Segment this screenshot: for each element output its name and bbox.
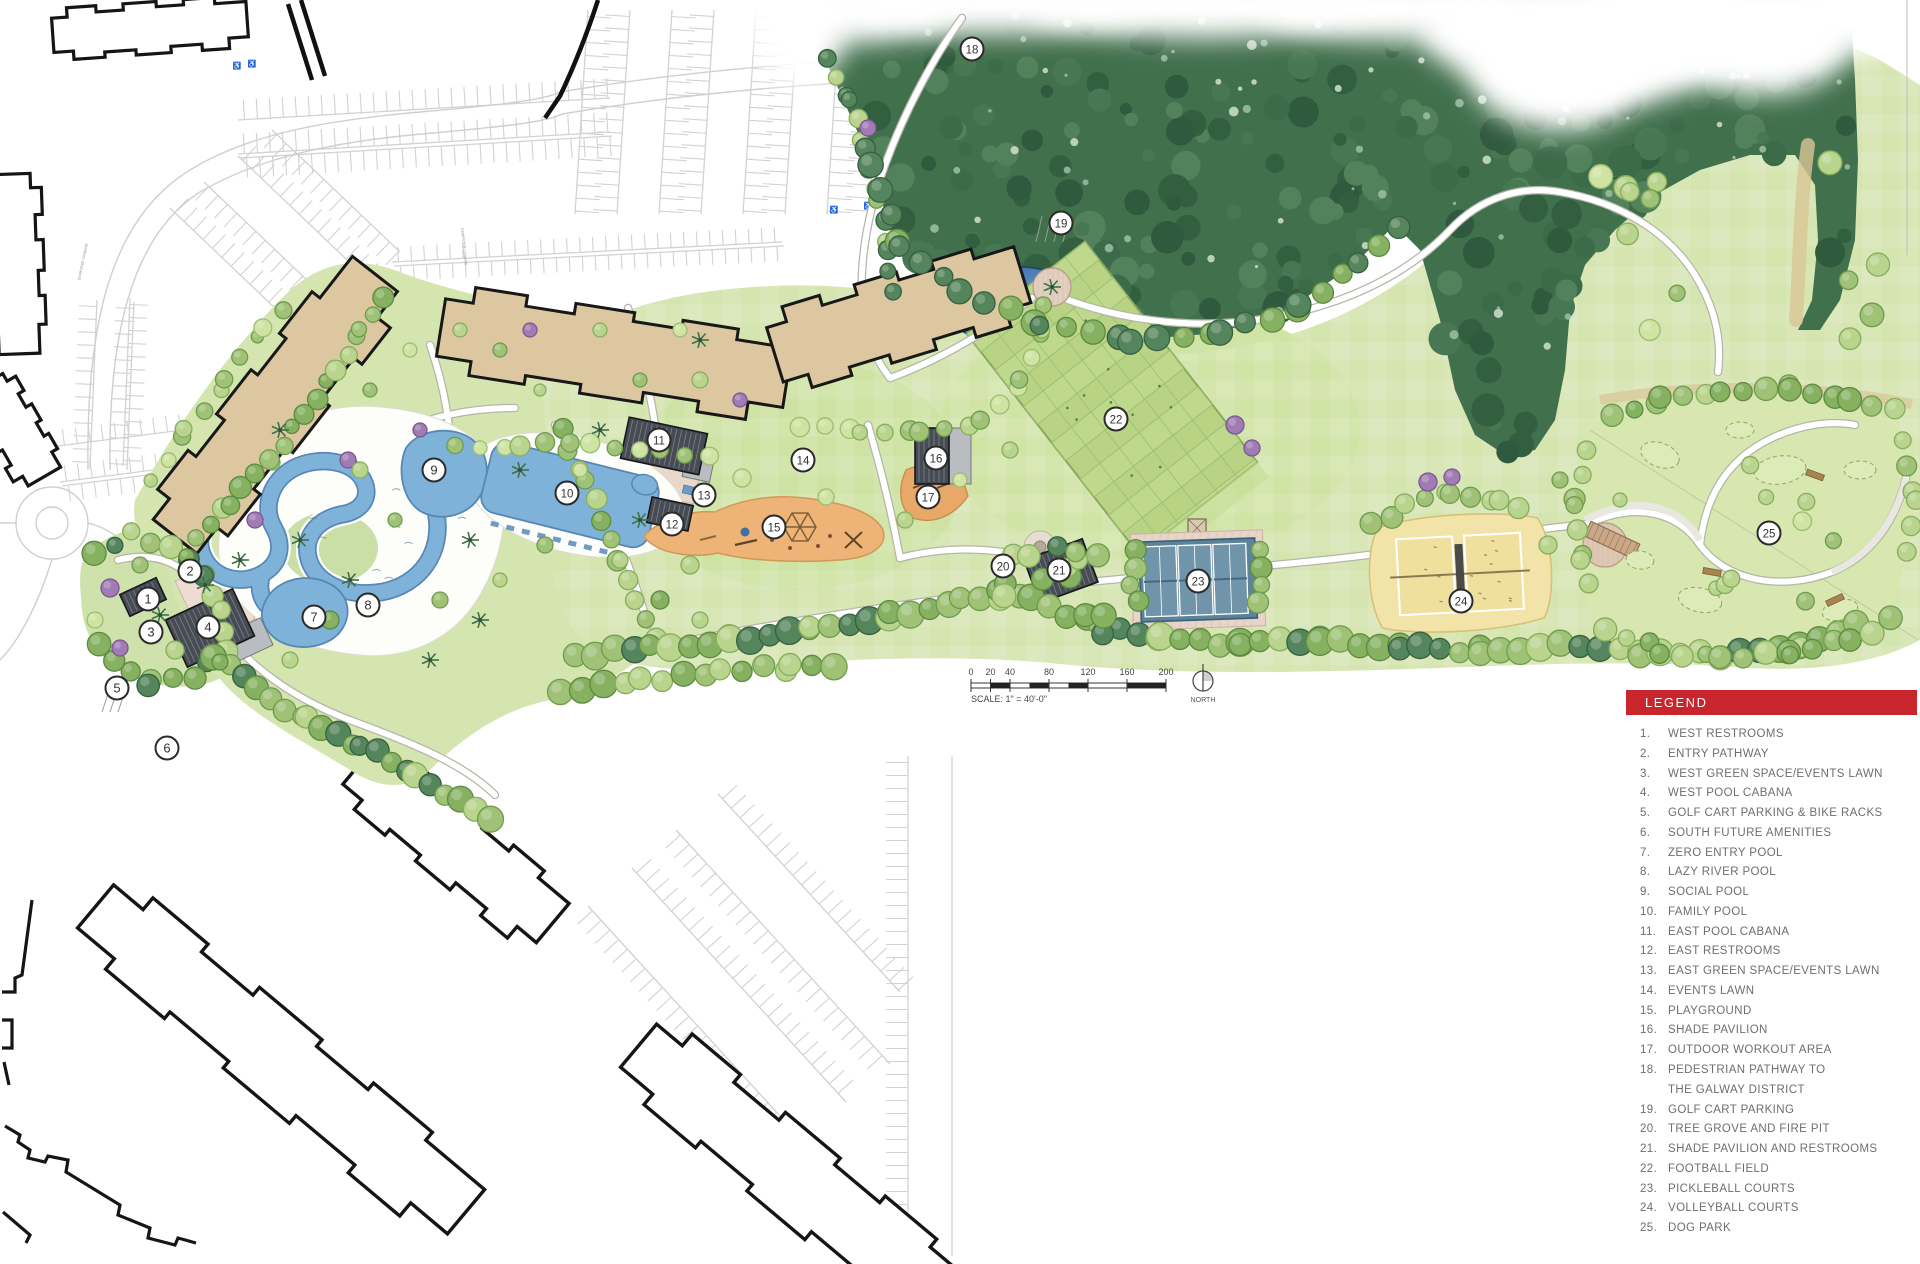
legend-item: 6.SOUTH FUTURE AMENITIES — [1640, 827, 1917, 847]
scale-tick-label: 0 — [968, 667, 973, 677]
legend-item-label: SOUTH FUTURE AMENITIES — [1668, 827, 1831, 839]
legend-item-number: 17. — [1640, 1044, 1668, 1056]
legend-item: THE GALWAY DISTRICT — [1640, 1084, 1917, 1104]
handicap-icon: ♿ — [233, 61, 242, 70]
legend-item-number: 20. — [1640, 1123, 1668, 1135]
legend-item: 9.SOCIAL POOL — [1640, 886, 1917, 906]
map-marker-19: 19 — [1050, 212, 1073, 235]
legend-item-number: 11. — [1640, 926, 1668, 938]
legend-item-label: TREE GROVE AND FIRE PIT — [1668, 1123, 1830, 1135]
legend-item-number: 15. — [1640, 1005, 1668, 1017]
legend-item-number: 14. — [1640, 985, 1668, 997]
map-marker-1: 1 — [137, 588, 160, 611]
legend-item-label: SOCIAL POOL — [1668, 886, 1749, 898]
legend-item: 16.SHADE PAVILION — [1640, 1024, 1917, 1044]
north-label: NORTH — [1191, 697, 1216, 704]
map-marker-25: 25 — [1758, 522, 1781, 545]
scale-tick-label: 20 — [985, 667, 995, 677]
legend-item-number: 19. — [1640, 1104, 1668, 1116]
legend-item-number: 23. — [1640, 1183, 1668, 1195]
svg-text:23: 23 — [1192, 577, 1205, 589]
map-marker-14: 14 — [792, 449, 815, 472]
map-marker-20: 20 — [992, 555, 1015, 578]
legend-item: 4.WEST POOL CABANA — [1640, 787, 1917, 807]
scale-tick-label: 160 — [1119, 667, 1134, 677]
legend-item-number: 8. — [1640, 866, 1668, 878]
svg-text:8: 8 — [364, 598, 371, 613]
legend-item-label: WEST GREEN SPACE/EVENTS LAWN — [1668, 768, 1883, 780]
svg-text:10: 10 — [561, 489, 574, 501]
legend-item-number: 7. — [1640, 847, 1668, 859]
legend-item-label: THE GALWAY DISTRICT — [1668, 1084, 1805, 1096]
map-marker-17: 17 — [917, 486, 940, 509]
legend-item-label: VOLLEYBALL COURTS — [1668, 1202, 1799, 1214]
svg-text:9: 9 — [430, 463, 437, 478]
svg-text:4: 4 — [204, 620, 211, 635]
legend-item-number: 1. — [1640, 728, 1668, 740]
map-marker-8: 8 — [357, 594, 380, 617]
map-marker-10: 10 — [556, 482, 579, 505]
legend-item-label: EAST RESTROOMS — [1668, 945, 1781, 957]
legend-item-number: 9. — [1640, 886, 1668, 898]
plan-small-labels: DUMPSTER LOADINGDUMPSTER LOADING — [77, 228, 468, 280]
svg-text:7: 7 — [310, 610, 317, 625]
legend-item-number: 3. — [1640, 768, 1668, 780]
legend-item: 13.EAST GREEN SPACE/EVENTS LAWN — [1640, 965, 1917, 985]
map-marker-9: 9 — [423, 459, 446, 482]
map-marker-15: 15 — [763, 516, 786, 539]
legend-item: 14.EVENTS LAWN — [1640, 985, 1917, 1005]
legend-item-label: EAST POOL CABANA — [1668, 926, 1789, 938]
svg-text:21: 21 — [1053, 566, 1066, 578]
svg-text:3: 3 — [147, 625, 154, 640]
legend-item: 12.EAST RESTROOMS — [1640, 945, 1917, 965]
svg-text:13: 13 — [698, 491, 711, 503]
legend-item: 19.GOLF CART PARKING — [1640, 1104, 1917, 1124]
legend-item: 20.TREE GROVE AND FIRE PIT — [1640, 1123, 1917, 1143]
legend-item: 5.GOLF CART PARKING & BIKE RACKS — [1640, 807, 1917, 827]
legend-header: LEGEND — [1626, 690, 1917, 715]
legend-item-label: GOLF CART PARKING & BIKE RACKS — [1668, 807, 1883, 819]
svg-text:14: 14 — [797, 456, 810, 468]
legend-item: 15.PLAYGROUND — [1640, 1005, 1917, 1025]
map-marker-6: 6 — [156, 737, 179, 760]
legend-item: 3.WEST GREEN SPACE/EVENTS LAWN — [1640, 768, 1917, 788]
legend-item-number: 12. — [1640, 945, 1668, 957]
map-marker-18: 18 — [961, 38, 984, 61]
legend-item: 25.DOG PARK — [1640, 1222, 1917, 1242]
legend-item-label: DOG PARK — [1668, 1222, 1731, 1234]
legend-item: 23.PICKLEBALL COURTS — [1640, 1183, 1917, 1203]
legend-item-label: SHADE PAVILION AND RESTROOMS — [1668, 1143, 1878, 1155]
legend-item: 18.PEDESTRIAN PATHWAY TO — [1640, 1064, 1917, 1084]
legend-item: 17.OUTDOOR WORKOUT AREA — [1640, 1044, 1917, 1064]
handicap-icon: ♿ — [248, 59, 257, 68]
legend-item: 11.EAST POOL CABANA — [1640, 926, 1917, 946]
scale-tick-label: 80 — [1044, 667, 1054, 677]
site-plan-page: ♿♿♿♿DUMPSTER LOADINGDUMPSTER LOADING1234… — [0, 0, 1920, 1264]
legend-item: 1.WEST RESTROOMS — [1640, 728, 1917, 748]
legend-item: 7.ZERO ENTRY POOL — [1640, 847, 1917, 867]
scale-tick-label: 120 — [1080, 667, 1095, 677]
legend-panel: LEGEND 1.WEST RESTROOMS2.ENTRY PATHWAY3.… — [1626, 690, 1917, 1242]
legend-item-label: EVENTS LAWN — [1668, 985, 1754, 997]
map-marker-22: 22 — [1105, 408, 1128, 431]
svg-text:1: 1 — [144, 592, 151, 607]
legend-item-label: ENTRY PATHWAY — [1668, 748, 1769, 760]
svg-text:15: 15 — [768, 523, 781, 535]
svg-text:12: 12 — [666, 520, 679, 532]
volleyball-courts — [1367, 510, 1555, 636]
legend-item-label: FOOTBALL FIELD — [1668, 1163, 1769, 1175]
scale-tick-label: 40 — [1005, 667, 1015, 677]
map-marker-3: 3 — [140, 621, 163, 644]
legend-item-number: 16. — [1640, 1024, 1668, 1036]
svg-text:2: 2 — [186, 564, 193, 579]
svg-text:25: 25 — [1763, 529, 1776, 541]
map-marker-11: 11 — [648, 429, 671, 452]
svg-text:24: 24 — [1455, 597, 1468, 609]
legend-item-number: 5. — [1640, 807, 1668, 819]
legend-item-label: GOLF CART PARKING — [1668, 1104, 1794, 1116]
map-marker-4: 4 — [197, 616, 220, 639]
plan-label: DUMPSTER LOADING — [77, 243, 89, 281]
map-marker-7: 7 — [303, 606, 326, 629]
legend-title: LEGEND — [1645, 695, 1707, 710]
legend-item: 8.LAZY RIVER POOL — [1640, 866, 1917, 886]
map-marker-2: 2 — [179, 560, 202, 583]
legend-item: 22.FOOTBALL FIELD — [1640, 1163, 1917, 1183]
legend-item-label: WEST POOL CABANA — [1668, 787, 1793, 799]
scale-tick-label: 200 — [1158, 667, 1173, 677]
handicap-icon: ♿ — [830, 205, 839, 214]
svg-text:19: 19 — [1055, 219, 1068, 231]
legend-item-number: 25. — [1640, 1222, 1668, 1234]
svg-text:18: 18 — [966, 45, 979, 57]
svg-text:5: 5 — [113, 681, 120, 696]
legend-item-label: FAMILY POOL — [1668, 906, 1747, 918]
map-marker-23: 23 — [1187, 570, 1210, 593]
legend-item-label: PICKLEBALL COURTS — [1668, 1183, 1795, 1195]
legend-item-number: 24. — [1640, 1202, 1668, 1214]
scale-caption: SCALE: 1" = 40'-0" — [971, 694, 1047, 704]
svg-text:11: 11 — [653, 436, 665, 448]
plan-label: DUMPSTER LOADING — [460, 228, 468, 266]
legend-item-label: EAST GREEN SPACE/EVENTS LAWN — [1668, 965, 1880, 977]
legend-item: 10.FAMILY POOL — [1640, 906, 1917, 926]
legend-item-label: OUTDOOR WORKOUT AREA — [1668, 1044, 1832, 1056]
svg-text:17: 17 — [922, 493, 935, 505]
legend-items: 1.WEST RESTROOMS2.ENTRY PATHWAY3.WEST GR… — [1626, 728, 1917, 1242]
svg-text:22: 22 — [1110, 415, 1123, 427]
legend-item-label: WEST RESTROOMS — [1668, 728, 1784, 740]
legend-item-number: 22. — [1640, 1163, 1668, 1175]
legend-item: 21.SHADE PAVILION AND RESTROOMS — [1640, 1143, 1917, 1163]
legend-item-label: PLAYGROUND — [1668, 1005, 1752, 1017]
legend-item-number: 6. — [1640, 827, 1668, 839]
legend-item-label: LAZY RIVER POOL — [1668, 866, 1776, 878]
svg-text:20: 20 — [997, 562, 1010, 574]
map-marker-21: 21 — [1048, 559, 1071, 582]
map-marker-24: 24 — [1450, 590, 1473, 613]
legend-item-number: 2. — [1640, 748, 1668, 760]
map-marker-5: 5 — [106, 677, 129, 700]
legend-item-label: ZERO ENTRY POOL — [1668, 847, 1783, 859]
map-marker-13: 13 — [693, 484, 716, 507]
legend-item-number: 4. — [1640, 787, 1668, 799]
legend-item-label: SHADE PAVILION — [1668, 1024, 1768, 1036]
legend-item-label: PEDESTRIAN PATHWAY TO — [1668, 1064, 1826, 1076]
legend-item-number: 13. — [1640, 965, 1668, 977]
legend-item-number: 18. — [1640, 1064, 1668, 1076]
map-marker-12: 12 — [661, 513, 684, 536]
legend-item: 24.VOLLEYBALL COURTS — [1640, 1202, 1917, 1222]
map-marker-16: 16 — [925, 447, 948, 470]
legend-item: 2.ENTRY PATHWAY — [1640, 748, 1917, 768]
legend-item-number: 21. — [1640, 1143, 1668, 1155]
svg-text:6: 6 — [163, 741, 170, 756]
legend-item-number: 10. — [1640, 906, 1668, 918]
svg-text:16: 16 — [930, 454, 943, 466]
